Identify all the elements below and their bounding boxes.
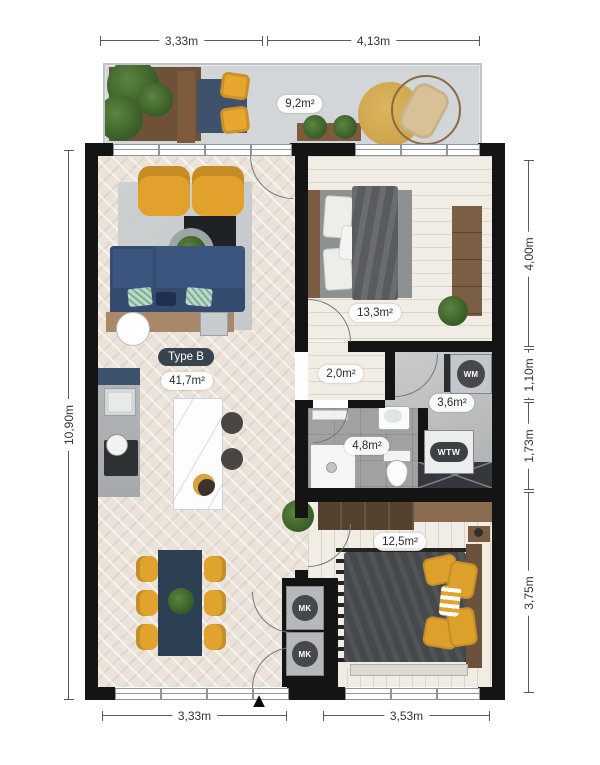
dimension-top-1: 3,33m: [100, 40, 263, 41]
dimension-label: 10,90m: [62, 399, 76, 451]
kitchen-sink: [104, 388, 136, 416]
wtw-text: WTW: [438, 447, 461, 457]
dimension-label: 3,33m: [159, 34, 204, 48]
dimension-label: 4,13m: [351, 34, 396, 48]
entrance-arrow-icon: ▲: [249, 691, 269, 711]
bar-stool: [221, 412, 243, 434]
sofa-pillow: [156, 292, 176, 306]
heat-recovery-unit: WTW: [424, 430, 474, 474]
balcony-chair: [220, 105, 251, 134]
window: [113, 144, 292, 156]
kitchen-bowl: [106, 434, 128, 456]
balcony-bench: [177, 71, 195, 143]
meter-cupboard: MK: [286, 586, 324, 630]
bed1-headboard: [306, 190, 321, 298]
wm-text: WM: [464, 370, 479, 379]
wall-bottom: [287, 687, 345, 700]
dimension-label: 1,73m: [522, 423, 536, 468]
wall-top: [85, 143, 113, 156]
dimension-bottom-1: 3,33m: [102, 715, 287, 716]
wtw-label: WTW: [430, 442, 468, 462]
lamp: [474, 528, 483, 537]
sink-basin: [384, 409, 402, 423]
dimension-label: 4,00m: [522, 231, 536, 276]
plant-icon: [303, 115, 327, 139]
shower-drain: [326, 462, 337, 473]
mk-text: MK: [298, 650, 311, 659]
balcony-area-label: 9,2m²: [277, 95, 322, 113]
bar-stool: [221, 448, 243, 470]
dimension-top-2: 4,13m: [267, 40, 480, 41]
bed-bench: [350, 664, 468, 676]
dimension-bottom-2: 3,53m: [323, 715, 490, 716]
washing-machine-label: WM: [457, 360, 485, 388]
wall-bedroom1-south: [348, 341, 492, 352]
plant-icon: [333, 115, 357, 139]
wall-living-east: [295, 156, 308, 352]
installation-area-label: 3,6m²: [429, 394, 474, 412]
dining-chair: [136, 590, 158, 616]
mk-text: MK: [298, 604, 311, 613]
tray: [200, 312, 228, 336]
plant-icon: [139, 83, 173, 117]
dimension-left: 10,90m: [68, 150, 69, 700]
dimension-right-4: 3,75m: [528, 492, 529, 693]
sofa-pillow: [127, 287, 153, 307]
kitchen-cabinet-blue: [98, 368, 140, 385]
wall-left: [85, 143, 98, 700]
mk-label: MK: [292, 595, 318, 621]
bathroom-area-label: 4,8m²: [344, 437, 389, 455]
wall-hall-bath: [308, 400, 313, 408]
bedroom2-area-label: 12,5m²: [374, 533, 426, 551]
washing-machine: WM: [450, 354, 492, 394]
dimension-label: 3,53m: [384, 709, 429, 723]
floor-plan: WM WTW MK MK 9,2m² Type B 41,7m² 13,3m² …: [0, 0, 600, 765]
window: [355, 144, 480, 156]
dining-chair: [204, 590, 226, 616]
wall-bottom: [85, 687, 115, 700]
sofa-pillow: [185, 287, 212, 307]
wall-bedroom2-north: [295, 488, 492, 502]
hallway-area-label: 2,0m²: [318, 365, 363, 383]
window: [345, 688, 480, 700]
bed1-blanket: [352, 186, 398, 300]
plant-icon: [168, 588, 194, 614]
bedroom1-area-label: 13,3m²: [349, 304, 401, 322]
wall-hall-tech: [385, 352, 395, 400]
dining-chair: [204, 556, 226, 582]
armchair: [192, 166, 244, 216]
dimension-label: 3,33m: [172, 709, 217, 723]
dimension-right-3: 1,73m: [528, 402, 529, 490]
wall-hall-bath: [348, 400, 385, 408]
dining-chair: [204, 624, 226, 650]
dining-chair: [136, 556, 158, 582]
dimension-right-2: 1,10m: [528, 349, 529, 400]
living-area-label: 41,7m²: [161, 372, 213, 390]
plant-icon: [438, 296, 468, 326]
mk-label: MK: [292, 641, 318, 667]
dimension-right-1: 4,00m: [528, 160, 529, 347]
type-label: Type B: [158, 348, 214, 366]
dimension-label: 3,75m: [522, 570, 536, 615]
bed2-striped-pillow: [438, 585, 461, 617]
wall-top: [478, 143, 505, 156]
bread-bowl: [193, 474, 215, 496]
wall-right: [492, 143, 505, 700]
wall-top: [290, 143, 355, 156]
round-table: [116, 312, 150, 346]
balcony-chair: [219, 71, 250, 101]
armchair: [138, 166, 190, 216]
wall-bottom: [478, 687, 505, 700]
meter-cupboard: MK: [286, 632, 324, 676]
dining-chair: [136, 624, 158, 650]
dimension-label: 1,10m: [522, 352, 536, 397]
